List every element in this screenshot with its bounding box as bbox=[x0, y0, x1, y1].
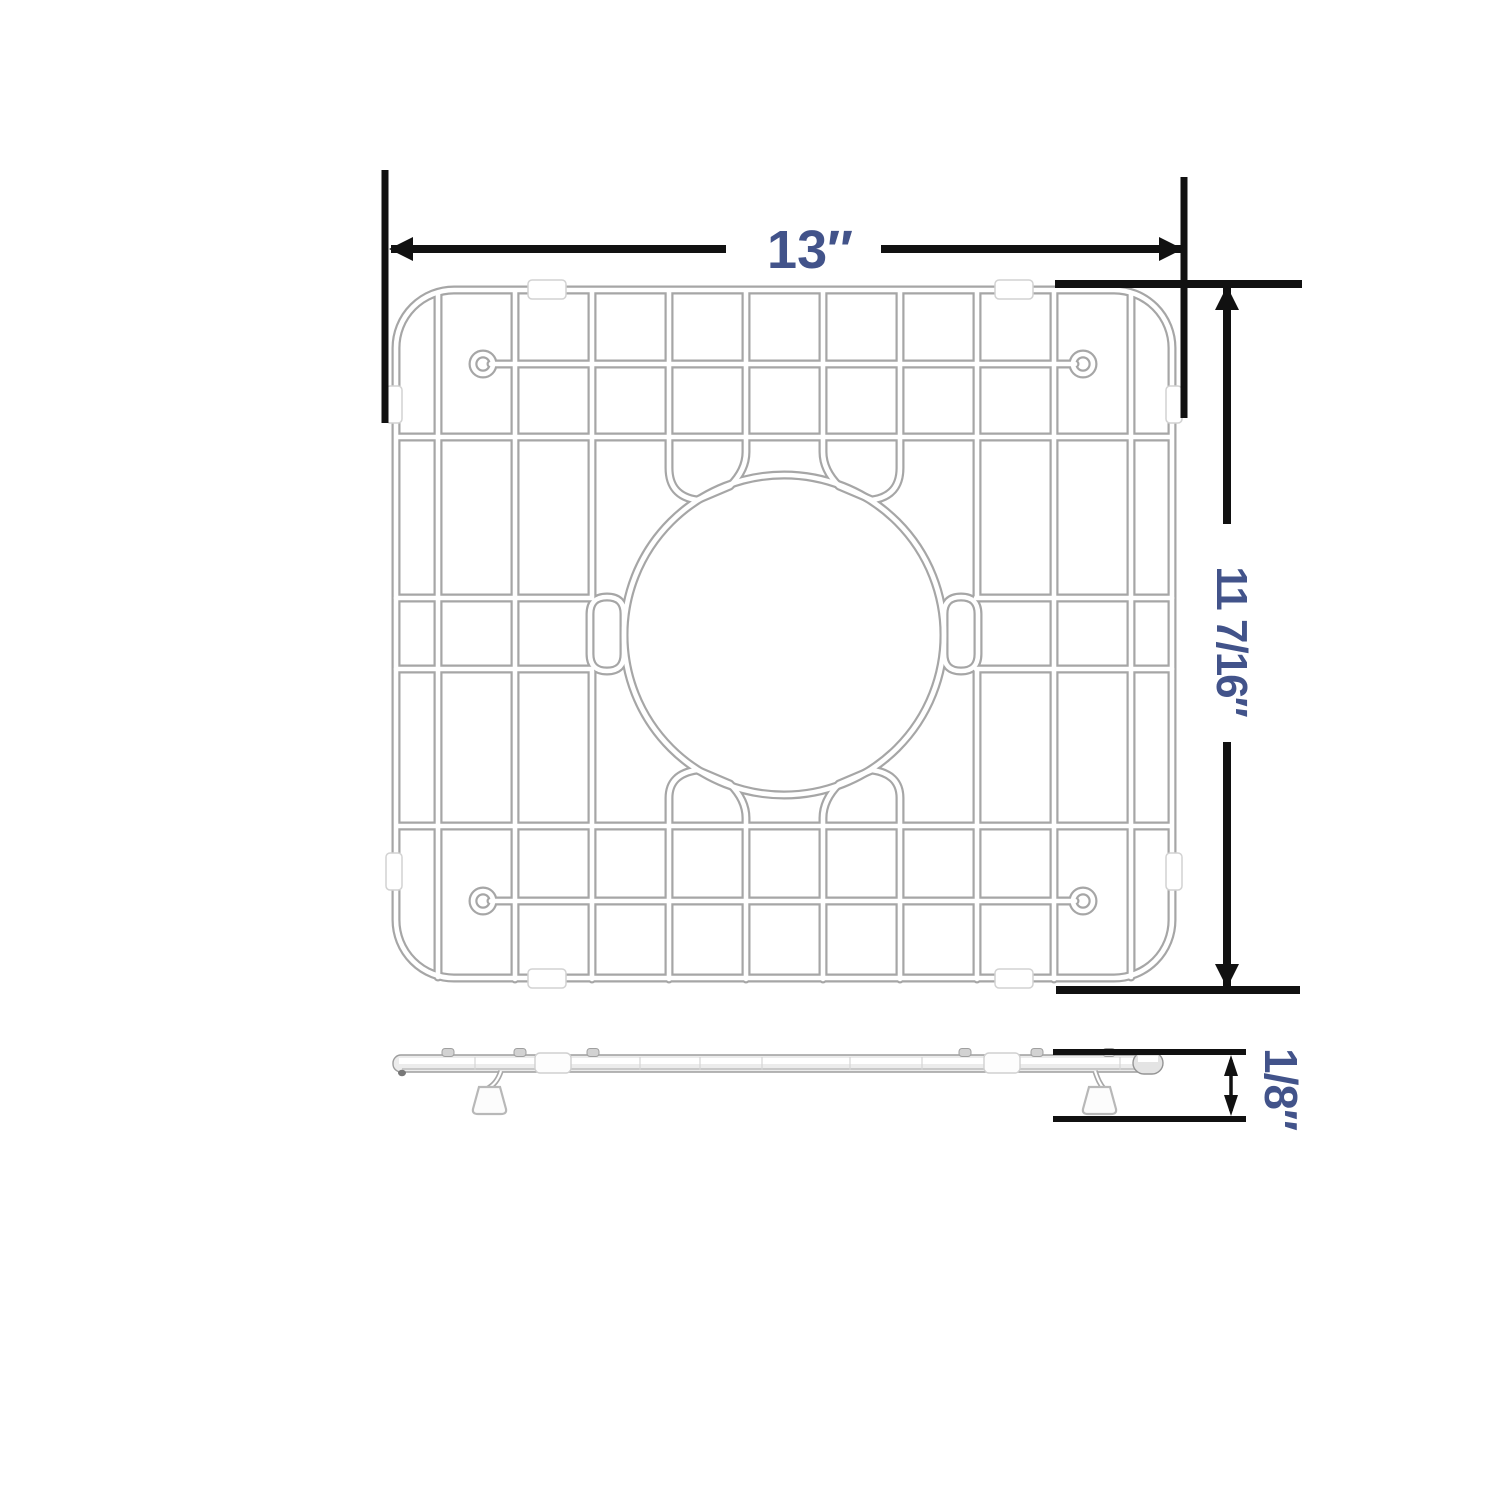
side-bar-right-cap bbox=[1133, 1052, 1163, 1074]
side-clip-sleeve-right bbox=[984, 1053, 1020, 1073]
clip-left-lower bbox=[386, 853, 402, 890]
clip-right-upper bbox=[1166, 386, 1182, 423]
height-dimension-label: 11 7/16″ bbox=[1205, 526, 1257, 756]
arrow-right-icon bbox=[1159, 237, 1183, 261]
thickness-dimension-label: 1/8″ bbox=[1255, 1024, 1307, 1154]
grid-clips bbox=[386, 280, 1182, 988]
arrow-down-icon bbox=[1215, 964, 1239, 988]
clip-right-lower bbox=[1166, 853, 1182, 890]
grid-side-view bbox=[393, 1049, 1163, 1115]
side-foot-left bbox=[473, 1087, 506, 1114]
side-clip-sleeve-left bbox=[535, 1053, 571, 1073]
arrow-left-icon bbox=[389, 237, 413, 261]
side-foot-right bbox=[1083, 1087, 1116, 1114]
clip-top-right bbox=[995, 280, 1033, 299]
side-bar-left-tip bbox=[398, 1070, 406, 1076]
clip-top-left bbox=[528, 280, 566, 299]
dimension-diagram: 13″ 11 7/16″ 1/8″ bbox=[0, 0, 1500, 1500]
small-arrow-down-icon bbox=[1224, 1095, 1238, 1116]
clip-bottom-left bbox=[528, 969, 566, 988]
width-dimension-label: 13″ bbox=[733, 221, 887, 279]
small-arrow-up-icon bbox=[1224, 1055, 1238, 1076]
clip-bottom-right bbox=[995, 969, 1033, 988]
grid-top-view bbox=[386, 280, 1182, 988]
arrow-up-icon bbox=[1215, 286, 1239, 310]
